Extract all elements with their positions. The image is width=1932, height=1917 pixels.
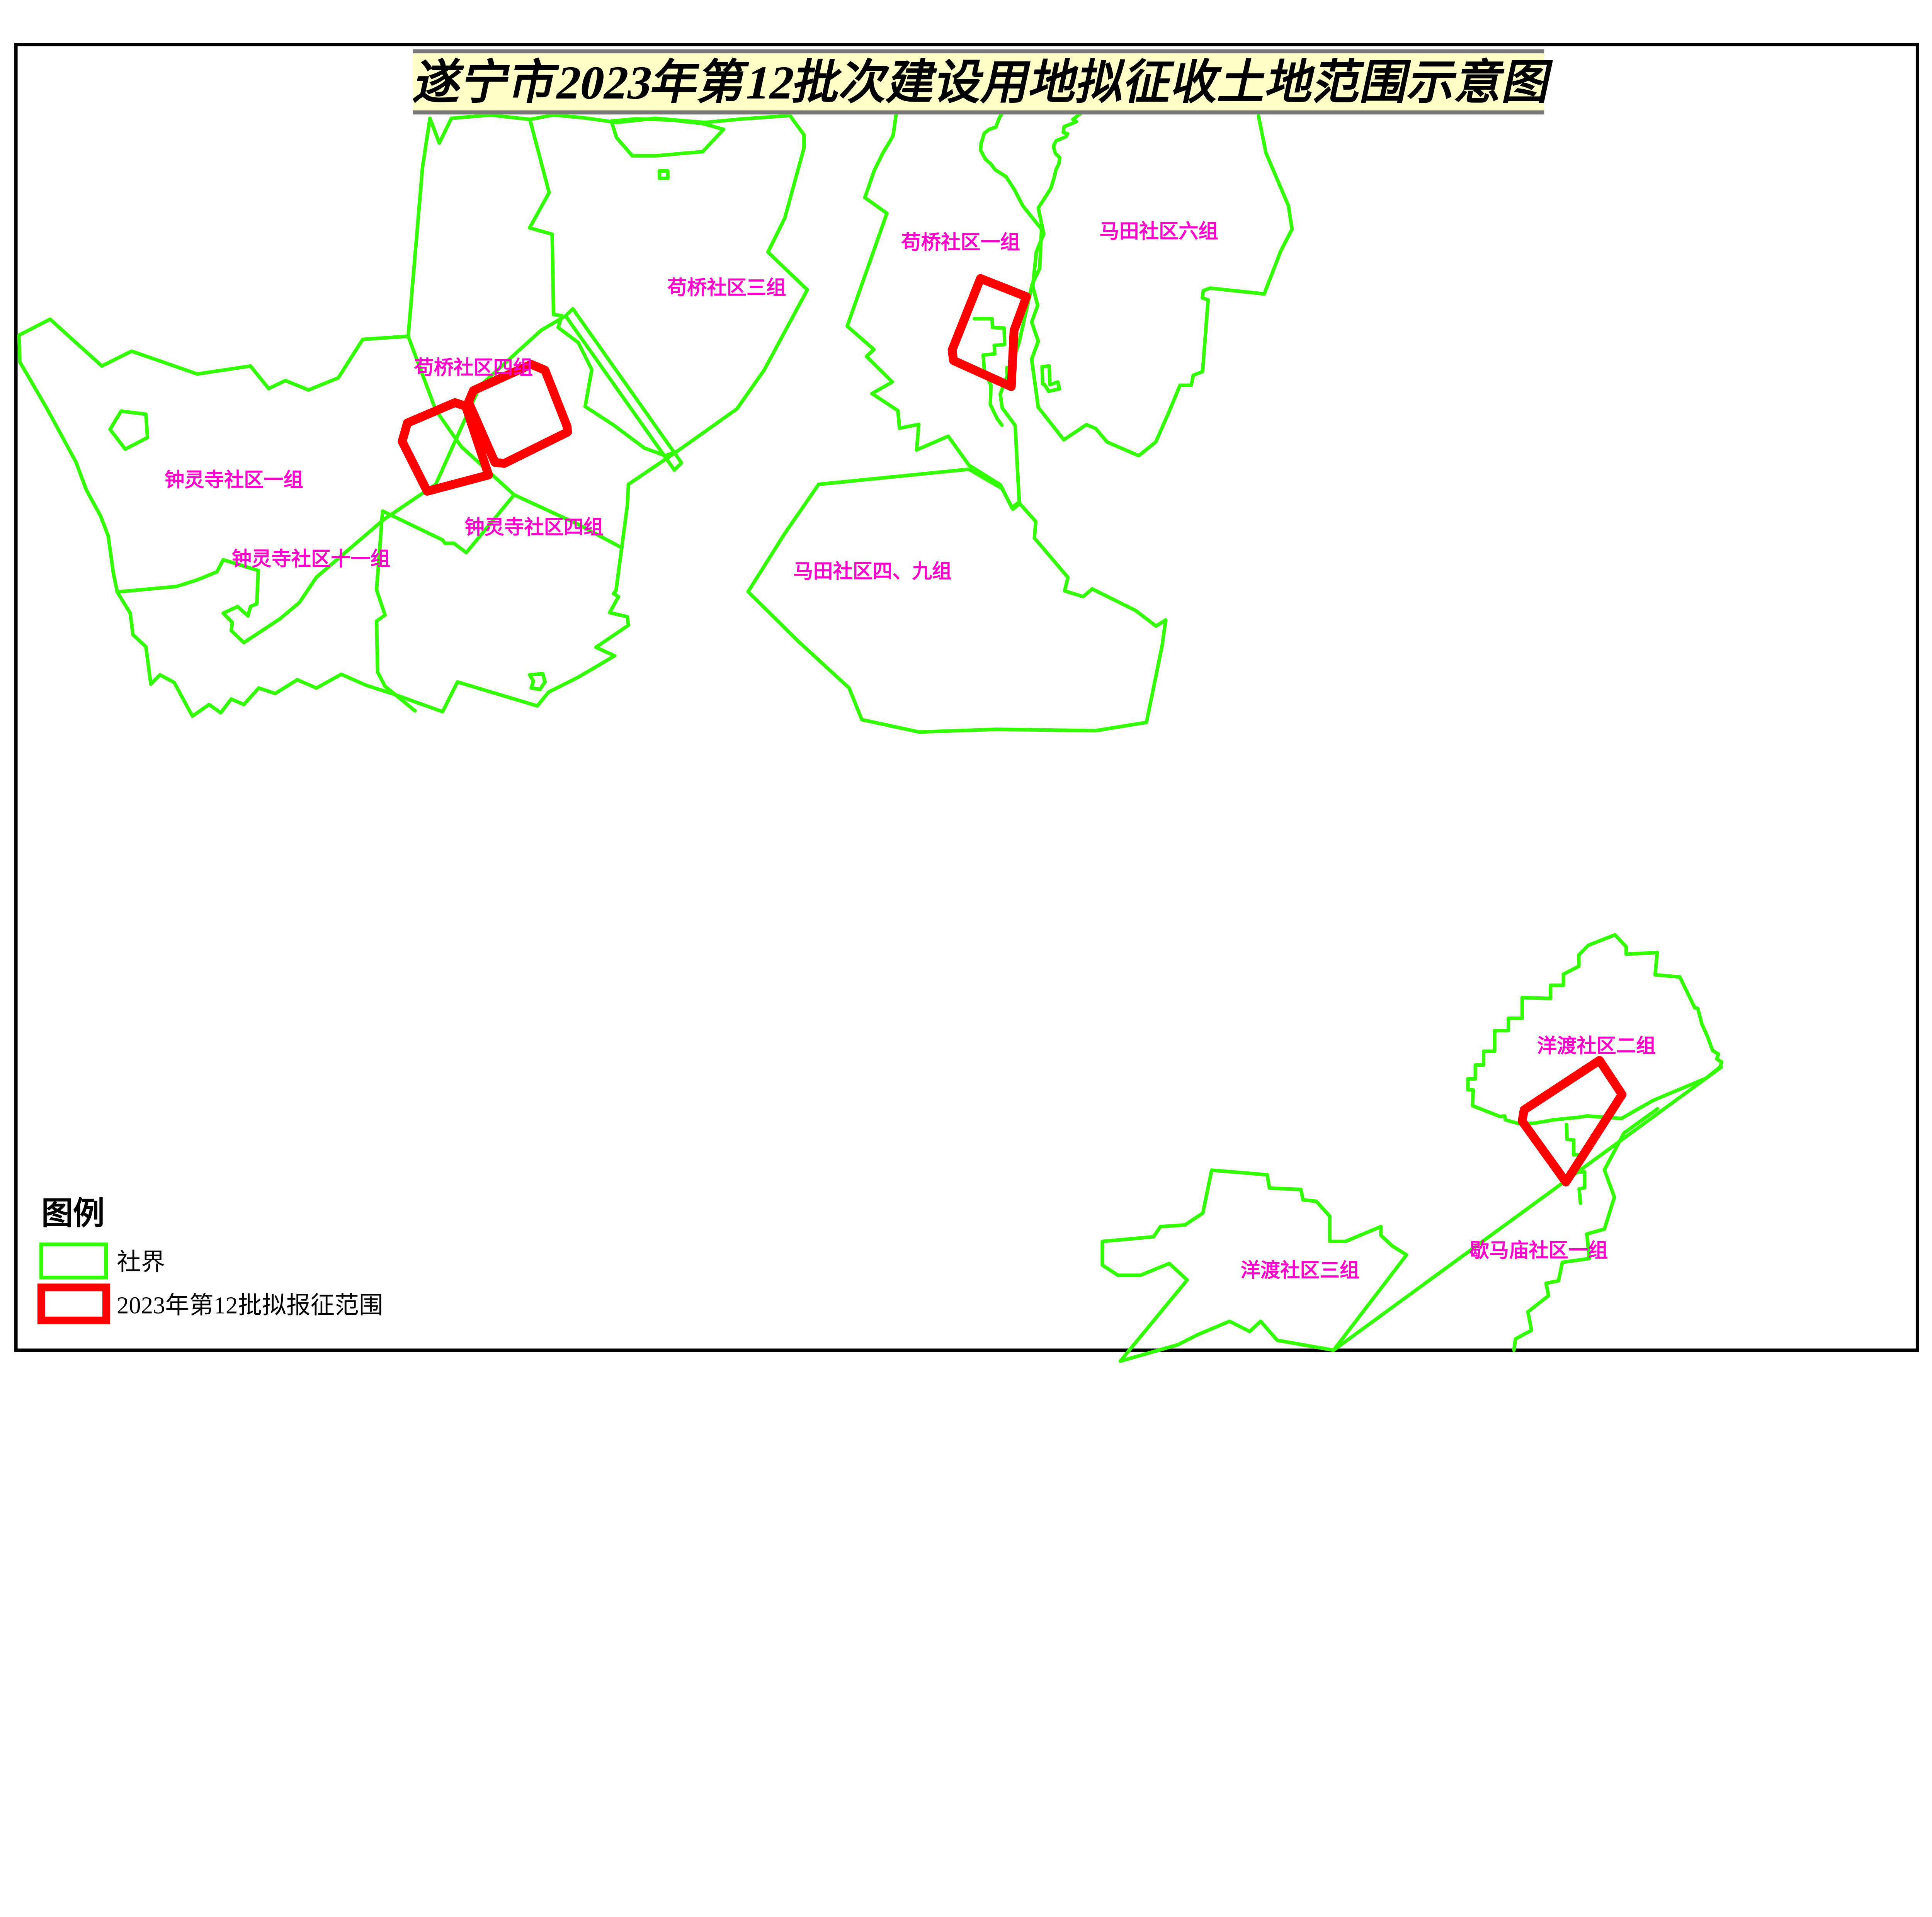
label-xiemamiao-1: 歇马庙社区一组 (1469, 1240, 1608, 1262)
label-gouqiao-1: 苟桥社区一组 (901, 232, 1020, 254)
label-zhonglingsi-4: 钟灵寺社区四组 (465, 517, 604, 539)
label-zhonglingsi-1: 钟灵寺社区一组 (165, 469, 303, 491)
label-matian-4-9: 马田社区四、九组 (793, 561, 952, 583)
map-title: 遂宁市2023年第12批次建设用地拟征收土地范围示意图 (410, 56, 1557, 109)
label-yangdu-3: 洋渡社区三组 (1241, 1259, 1360, 1281)
legend-boundary-swatch (41, 1244, 106, 1277)
title-top-bar (413, 49, 1544, 54)
label-gouqiao-4: 苟桥社区四组 (414, 357, 533, 379)
legend-header: 图例 (41, 1196, 105, 1231)
map-stage: 遂宁市2023年第12批次建设用地拟征收土地范围示意图 苟桥社区四组 苟桥社区三… (0, 0, 1932, 1366)
legend-acquisition-label: 2023年第12批拟报征范围 (117, 1292, 383, 1319)
legend-acquisition-swatch (41, 1287, 106, 1320)
label-yangdu-2: 洋渡社区二组 (1537, 1035, 1656, 1057)
land-acquisition-map: 遂宁市2023年第12批次建设用地拟征收土地范围示意图 苟桥社区四组 苟桥社区三… (0, 0, 1932, 1366)
label-matian-6: 马田社区六组 (1099, 221, 1218, 243)
title-box: 遂宁市2023年第12批次建设用地拟征收土地范围示意图 (410, 49, 1557, 115)
title-bottom-bar (413, 110, 1544, 115)
label-zhonglingsi-11: 钟灵寺社区十一组 (232, 548, 390, 570)
legend-boundary-label: 社界 (117, 1249, 165, 1276)
label-gouqiao-3: 苟桥社区三组 (667, 277, 786, 299)
